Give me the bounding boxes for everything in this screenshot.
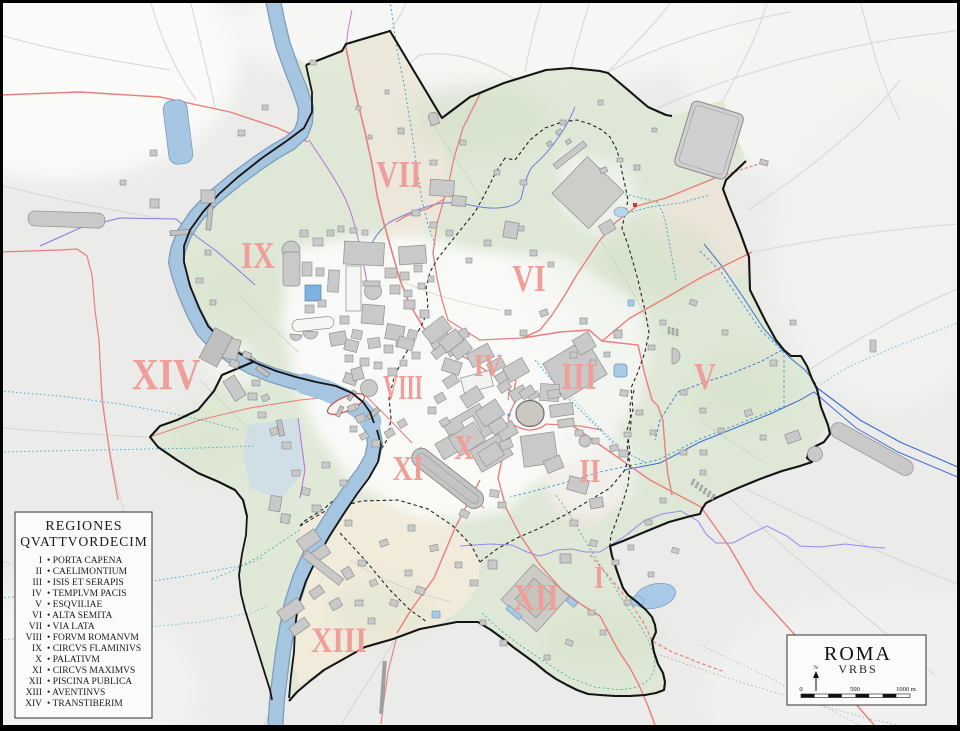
- svg-text:• CIRCVS MAXIMVS: • CIRCVS MAXIMVS: [47, 666, 135, 676]
- svg-text:V: V: [35, 600, 42, 610]
- svg-text:• ALTA SEMITA: • ALTA SEMITA: [47, 611, 112, 621]
- svg-text:VIII: VIII: [26, 633, 42, 643]
- svg-text:IX: IX: [241, 235, 275, 277]
- svg-text:V: V: [694, 356, 716, 398]
- svg-text:1000 m: 1000 m: [896, 686, 916, 693]
- svg-text:• ESQVILIAE: • ESQVILIAE: [47, 600, 102, 610]
- svg-text:II: II: [579, 452, 600, 490]
- svg-text:IX: IX: [32, 644, 42, 654]
- svg-text:N: N: [814, 665, 818, 671]
- svg-text:• PISCINA PUBLICA: • PISCINA PUBLICA: [47, 677, 132, 687]
- svg-text:VII: VII: [29, 622, 42, 632]
- svg-text:X: X: [454, 428, 474, 467]
- svg-text:• VIA LATA: • VIA LATA: [47, 622, 95, 632]
- svg-text:XII: XII: [513, 577, 559, 619]
- svg-text:• TEMPLVM PACIS: • TEMPLVM PACIS: [47, 589, 127, 599]
- svg-text:III: III: [561, 356, 596, 398]
- svg-text:I: I: [594, 560, 604, 595]
- svg-text:REGIONES: REGIONES: [45, 519, 122, 534]
- svg-text:• FORVM ROMANVM: • FORVM ROMANVM: [47, 633, 139, 643]
- svg-text:VI: VI: [512, 258, 546, 300]
- svg-text:• CIRCVS FLAMINIVS: • CIRCVS FLAMINIVS: [47, 644, 141, 654]
- svg-text:• ISIS ET SERAPIS: • ISIS ET SERAPIS: [47, 578, 124, 588]
- svg-text:IV: IV: [32, 589, 42, 599]
- svg-text:XI: XI: [392, 449, 423, 488]
- svg-text:XIII: XIII: [311, 621, 367, 660]
- svg-text:X: X: [35, 655, 42, 665]
- svg-text:QVATTVORDECIM: QVATTVORDECIM: [20, 534, 148, 549]
- svg-text:VRBS: VRBS: [838, 662, 877, 676]
- svg-text:XIII: XIII: [26, 688, 42, 698]
- svg-text:XII: XII: [29, 677, 42, 687]
- svg-text:XI: XI: [32, 666, 42, 676]
- svg-text:I: I: [39, 556, 42, 566]
- svg-text:IV: IV: [474, 348, 503, 383]
- svg-text:• CAELIMONTIUM: • CAELIMONTIUM: [47, 567, 128, 577]
- svg-text:VIII: VIII: [383, 369, 423, 408]
- svg-text:II: II: [36, 567, 42, 577]
- svg-text:500: 500: [850, 686, 860, 693]
- svg-text:XIV: XIV: [25, 699, 42, 709]
- svg-text:• PORTA CAPENA: • PORTA CAPENA: [47, 556, 123, 566]
- svg-text:• AVENTINVS: • AVENTINVS: [47, 688, 105, 698]
- svg-text:VI: VI: [32, 611, 42, 621]
- svg-text:0: 0: [799, 686, 802, 693]
- svg-text:VII: VII: [376, 154, 422, 196]
- svg-text:• PALATIVM: • PALATIVM: [47, 655, 100, 665]
- svg-text:III: III: [33, 578, 43, 588]
- svg-text:• TRANSTIBERIM: • TRANSTIBERIM: [47, 699, 123, 709]
- svg-text:XIV: XIV: [132, 350, 201, 398]
